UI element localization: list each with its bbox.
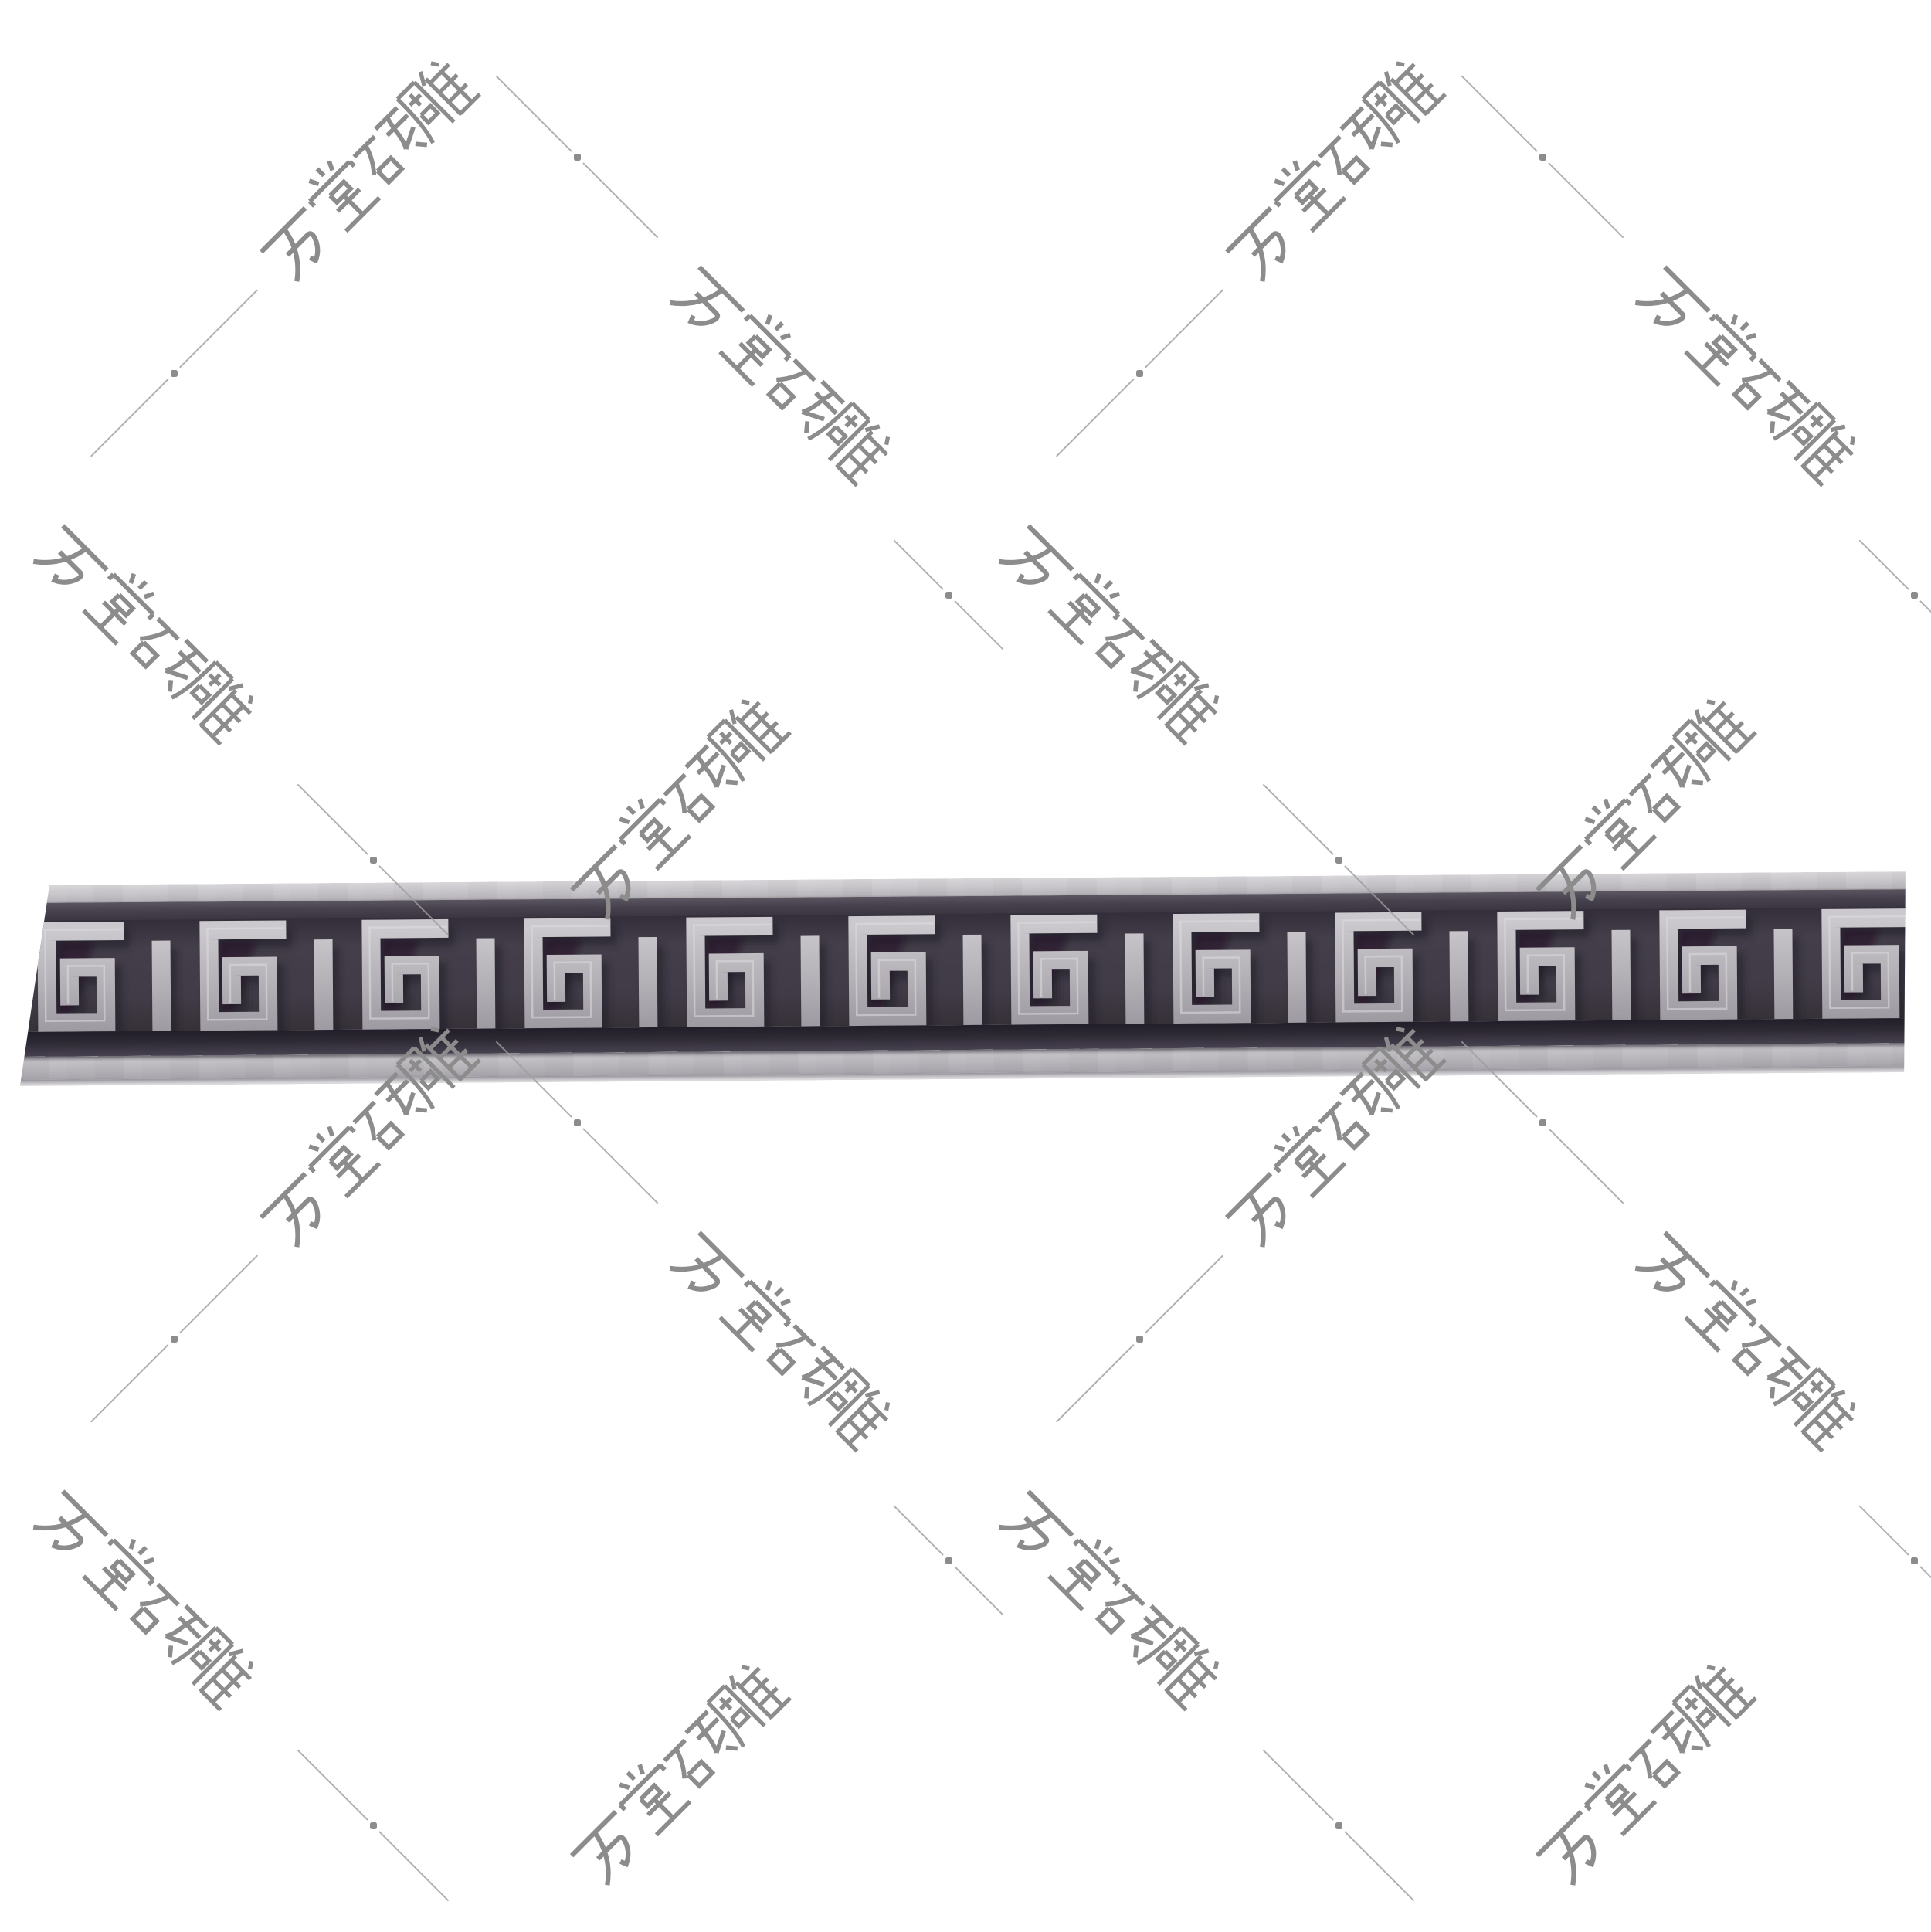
watermark-text xyxy=(22,506,269,753)
watermark-dot xyxy=(1539,1119,1546,1126)
watermark-text xyxy=(241,1011,488,1258)
watermark-text xyxy=(987,506,1234,753)
watermark-text xyxy=(987,1472,1234,1719)
watermark-dot xyxy=(1335,1822,1342,1829)
watermark-dot xyxy=(370,857,377,864)
watermark-dot xyxy=(370,1822,377,1829)
watermark-dot xyxy=(1911,1557,1918,1564)
watermark-text xyxy=(658,247,905,494)
watermark-text xyxy=(1206,46,1454,293)
product-image-canvas: 万堂砖雕 xyxy=(0,0,1931,1932)
watermark-diagonal-line xyxy=(1859,540,1931,650)
watermark-dot xyxy=(574,1119,581,1126)
watermark-diagonal-line xyxy=(1859,1506,1931,1616)
watermark-dot xyxy=(945,592,952,599)
watermark-text xyxy=(551,684,799,931)
watermark-dot xyxy=(1136,1336,1143,1343)
watermark-dot xyxy=(1136,370,1143,377)
watermark-text xyxy=(551,1649,799,1896)
watermark-text xyxy=(1517,1649,1764,1896)
watermark-dot xyxy=(1539,154,1546,161)
watermark-dot xyxy=(574,154,581,161)
watermark-dot xyxy=(1335,857,1342,864)
watermark-layer: 万堂砖雕 xyxy=(0,0,1931,1932)
watermark-dot xyxy=(945,1557,952,1564)
watermark-text xyxy=(1624,247,1871,494)
watermark-dot xyxy=(1911,592,1918,599)
watermark-dot xyxy=(171,370,178,377)
watermark-text xyxy=(1206,1011,1454,1258)
watermark-text xyxy=(241,46,488,293)
watermark-text xyxy=(1624,1213,1871,1460)
watermark-text xyxy=(1517,684,1764,931)
watermark-text xyxy=(22,1472,269,1719)
watermark-text xyxy=(658,1213,905,1460)
watermark-dot xyxy=(171,1336,178,1343)
